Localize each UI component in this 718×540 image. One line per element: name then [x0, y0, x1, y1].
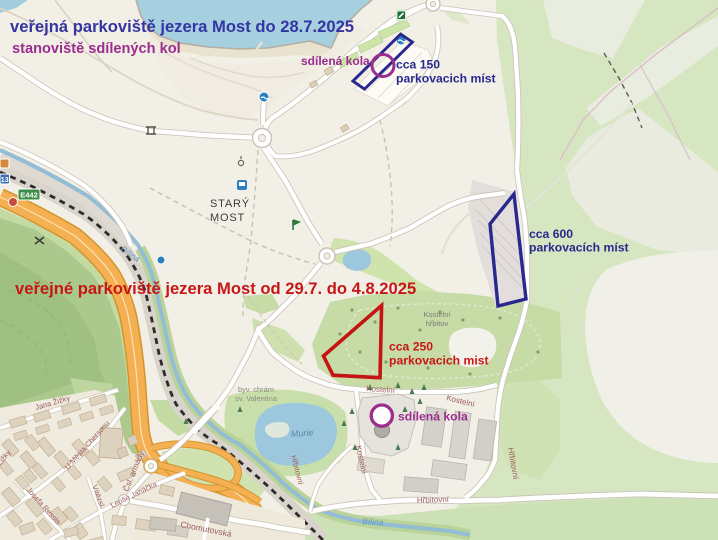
svg-text:cca 600: cca 600: [529, 227, 573, 241]
svg-text:sv. Valentina: sv. Valentina: [235, 394, 278, 403]
svg-text:13: 13: [1, 177, 9, 184]
svg-text:stanoviště sdílených kol: stanoviště sdílených kol: [12, 41, 181, 57]
svg-text:parkovacich míst: parkovacich míst: [396, 72, 496, 86]
svg-text:hřbitov: hřbitov: [426, 319, 449, 328]
svg-text:Kostelní: Kostelní: [423, 310, 451, 319]
svg-text:parkovacích míst: parkovacích míst: [529, 241, 629, 255]
svg-text:Murie: Murie: [290, 427, 313, 439]
svg-text:cca 150: cca 150: [396, 58, 440, 72]
svg-text:byv. chrám: byv. chrám: [238, 385, 274, 394]
svg-text:sdílená kola: sdílená kola: [301, 54, 370, 68]
svg-text:STARÝ: STARÝ: [210, 197, 250, 210]
svg-text:Hřbitovní: Hřbitovní: [417, 495, 450, 505]
svg-text:sdílená kola: sdílená kola: [398, 410, 468, 424]
svg-text:veřejné parkoviště jezera Most: veřejné parkoviště jezera Most od 29.7. …: [15, 279, 416, 298]
svg-text:cca 250: cca 250: [389, 340, 433, 354]
svg-text:MOST: MOST: [210, 212, 245, 224]
svg-text:Bílina: Bílina: [362, 516, 384, 527]
svg-text:veřejná parkoviště jezera Most: veřejná parkoviště jezera Most do 28.7.2…: [10, 17, 354, 36]
svg-text:E442: E442: [20, 191, 38, 200]
svg-text:parkovacich mist: parkovacich mist: [389, 354, 489, 368]
